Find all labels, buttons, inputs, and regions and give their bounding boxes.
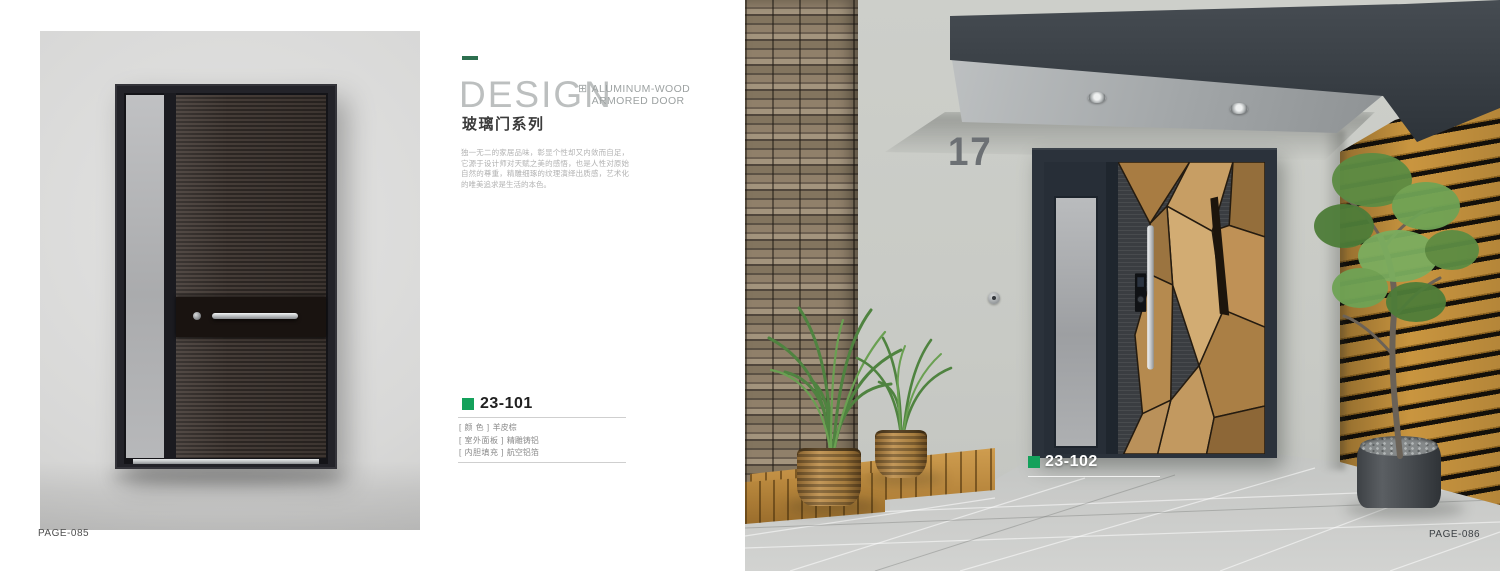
door-leaf-wood-facets (1118, 162, 1265, 454)
door-frame (115, 84, 337, 469)
wood-facet-pattern (1118, 162, 1265, 454)
downlight-icon (1088, 92, 1106, 103)
door-sidelight (1044, 162, 1106, 454)
wicker-pot (797, 448, 861, 506)
accent-dash (462, 56, 478, 60)
right-page-render: 17 (745, 0, 1500, 571)
label-underline (1028, 476, 1160, 477)
spec-label: [ 颜 色 ] (459, 423, 490, 432)
spec-label: [ 内胆填充 ] (459, 448, 504, 457)
sidelight-glass (1054, 196, 1098, 448)
house-number: 17 (948, 130, 993, 175)
door-handle (212, 313, 298, 319)
page-number-left: PAGE-085 (38, 528, 89, 539)
door-pull-handle (1147, 225, 1154, 369)
divider (458, 417, 626, 418)
door-sidelight-glass (126, 95, 164, 458)
green-square-icon (462, 398, 474, 410)
door-floor-shadow (110, 469, 344, 485)
entrance-door-23-102 (1032, 148, 1277, 458)
page-number-right: PAGE-086 (1429, 529, 1480, 540)
product-photo-23-101 (40, 31, 420, 530)
wicker-pot (875, 430, 927, 478)
spec-list: [ 颜 色 ]羊皮棕 [ 室外面板 ]精雕铸铝 [ 内胆填充 ]航空铝箔 (459, 422, 539, 460)
series-description: 独一无二的家居品味，彰显个性却又内敛而自足，它源于设计师对天赋之美的感悟，也是人… (461, 148, 629, 190)
left-page: DESIGN ⊞ ALUMINUM-WOOD ARMORED DOOR 玻璃门系… (0, 0, 745, 571)
smart-lock-dial (1137, 296, 1144, 303)
subtitle-block: ⊞ ALUMINUM-WOOD ARMORED DOOR (578, 83, 690, 107)
door-leaf-sheen (176, 95, 326, 458)
spec-value: 航空铝箔 (507, 448, 539, 457)
door-threshold (133, 459, 319, 464)
door-leaf (176, 95, 326, 458)
spec-row: [ 内胆填充 ]航空铝箔 (459, 447, 539, 460)
subtitle-line-2: ARMORED DOOR (592, 95, 685, 107)
door-mullion (164, 93, 176, 464)
plus-box-icon: ⊞ (578, 83, 588, 107)
product-label-row: 23-102 (1028, 453, 1098, 471)
tree (1300, 118, 1500, 463)
spec-label: [ 室外面板 ] (459, 436, 504, 445)
spec-value: 精雕铸铝 (507, 436, 539, 445)
smart-lock-screen (1137, 277, 1144, 287)
door-frame-inner (124, 93, 328, 464)
doorbell-icon (988, 292, 1000, 304)
green-square-icon (1028, 456, 1040, 468)
door-handle-band (176, 297, 326, 337)
downlight-icon (1230, 103, 1248, 114)
spec-value: 羊皮棕 (493, 423, 517, 432)
divider (458, 462, 626, 463)
spec-row: [ 颜 色 ]羊皮棕 (459, 422, 539, 435)
spec-row: [ 室外面板 ]精雕铸铝 (459, 435, 539, 448)
series-title: 玻璃门系列 (462, 113, 545, 134)
catalog-spread: DESIGN ⊞ ALUMINUM-WOOD ARMORED DOOR 玻璃门系… (0, 0, 1500, 571)
door-mullion (1106, 162, 1118, 454)
product-code-row: 23-101 (462, 395, 533, 413)
subtitle-line-1: ALUMINUM-WOOD (592, 83, 691, 95)
potted-plant (849, 318, 959, 438)
keyhole-icon (193, 312, 201, 320)
product-code: 23-102 (1045, 453, 1098, 471)
subtitle-text: ALUMINUM-WOOD ARMORED DOOR (592, 83, 691, 107)
product-code: 23-101 (480, 395, 533, 413)
